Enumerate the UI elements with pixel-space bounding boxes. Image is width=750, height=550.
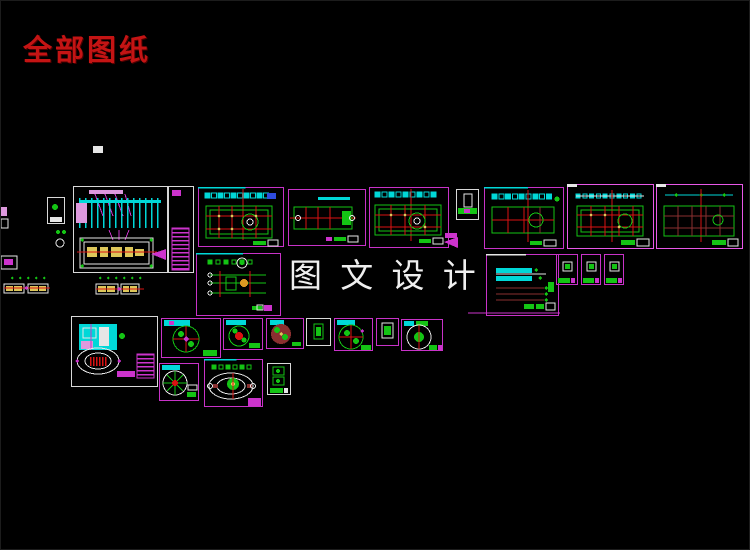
drawing-bars-c-shape-1 <box>496 276 532 281</box>
loose-shape-22 <box>107 277 110 280</box>
loose-shape-7 <box>4 259 13 265</box>
drawing-bars-c-shape-14 <box>546 303 555 310</box>
drawing-wheel-a-shape-7 <box>183 336 189 342</box>
loose-shape-36 <box>444 237 458 248</box>
drawing-wheel-a-shape-8 <box>203 350 217 356</box>
drawing-ellipse-part-shape-6 <box>213 384 218 388</box>
drawing-ellipse-part[interactable] <box>204 360 263 407</box>
drawing-bars-c-shape-4 <box>538 276 542 280</box>
drawing-wheel-b[interactable] <box>224 319 263 350</box>
drawing-plan-b-shape-11 <box>390 214 393 217</box>
drawing-thumb-c[interactable] <box>605 255 624 285</box>
drawing-wheel-b-shape-0 <box>226 320 246 325</box>
drawing-bars-a-shape-9 <box>334 237 346 241</box>
drawing-part-small-top-shape-2 <box>464 209 470 213</box>
drawing-detail-left-shape-2 <box>99 327 109 346</box>
drawing-plan-a[interactable] <box>198 188 284 247</box>
drawing-wheel-f-shape-7 <box>187 392 196 397</box>
drawing-plan-e-shape-4 <box>722 193 726 197</box>
drawing-detail-left-shape-8 <box>90 357 107 366</box>
drawing-wheel-e-shape-0 <box>404 321 414 326</box>
drawing-plan-d-shape-16 <box>621 240 635 245</box>
loose-shape-1 <box>56 230 60 234</box>
drawing-plan-d[interactable] <box>567 184 654 249</box>
drawing-bars-c-shape-3 <box>534 268 538 272</box>
drawing-wheel-a-shape-6 <box>188 341 194 347</box>
drawing-plan-b-shape-15 <box>433 238 443 244</box>
drawing-plan-d-shape-12 <box>618 214 632 228</box>
drawing-plan-a-shape-1 <box>267 193 276 199</box>
drawing-wheel-d-shape-4 <box>344 330 350 336</box>
drawing-wheel-a-shape-1 <box>169 321 174 325</box>
loose-shape-4 <box>1 207 7 216</box>
drawing-part-c-shape-4 <box>270 388 283 393</box>
drawing-plan-d-shape-17 <box>637 239 649 246</box>
drawing-assembly-main-shape-21 <box>80 264 84 268</box>
drawing-wheel-c-shape-5 <box>292 342 301 346</box>
drawing-detail-left-shape-12 <box>137 354 154 376</box>
drawing-bars-a-shape-11 <box>326 237 332 241</box>
drawing-plan-c-shape-10 <box>544 240 556 246</box>
loose-shape-26 <box>139 277 142 280</box>
drawing-thumb-b-shape-1 <box>589 264 594 269</box>
drawing-bars-b-shape-2 <box>240 261 244 265</box>
drawing-part-b-shape-1 <box>384 326 391 335</box>
drawing-part-c-shape-1 <box>276 369 280 373</box>
drawing-plan-b-shape-14 <box>419 239 431 243</box>
drawing-bars-c-shape-8 <box>544 286 548 290</box>
drawing-assembly-main[interactable] <box>74 187 168 273</box>
drawing-wheel-a-shape-0 <box>164 320 190 326</box>
drawing-wheel-f-shape-0 <box>162 365 180 370</box>
loose-shape-5 <box>1 219 8 228</box>
watermark-text: 图 文 设 计 <box>289 249 481 297</box>
drawing-plan-c-shape-8 <box>555 197 560 202</box>
drawing-plan-d-shape-0 <box>567 184 577 187</box>
drawing-wheel-f-shape-8 <box>188 385 197 390</box>
drawing-bars-c-shape-10 <box>544 298 548 302</box>
loose-shape-24 <box>123 277 126 280</box>
drawing-wheel-c-shape-3 <box>282 334 288 340</box>
loose-shape-21 <box>99 277 102 280</box>
drawing-detail-left-shape-6 <box>77 348 119 374</box>
drawing-thumb-b-shape-2 <box>583 278 594 283</box>
loose-shape-0 <box>93 146 103 153</box>
drawing-thumb-a-shape-2 <box>558 278 570 283</box>
drawing-bars-a-shape-0 <box>318 197 350 200</box>
drawing-plan-a-shape-18 <box>268 240 278 246</box>
drawing-wheel-e[interactable] <box>402 320 443 351</box>
drawing-ellipse-part-shape-8 <box>208 384 213 389</box>
loose-shape-12 <box>43 277 46 280</box>
drawing-ref-box-shape-0 <box>52 204 58 210</box>
drawing-plan-a-shape-3 <box>206 206 272 238</box>
drawing-part-small-top-shape-0 <box>464 194 472 207</box>
drawing-thumb-c-shape-2 <box>606 278 617 283</box>
loose-shape-3 <box>56 239 64 247</box>
drawing-wheel-d-shape-7 <box>361 345 371 350</box>
drawing-part-a-shape-1 <box>316 327 321 336</box>
page-title: 全部图纸 <box>23 27 151 69</box>
drawing-bars-c-shape-0 <box>496 268 532 273</box>
drawing-bars-a-shape-10 <box>348 236 358 242</box>
drawing-bars-a[interactable] <box>289 190 366 246</box>
drawing-detail-left-shape-9 <box>75 359 79 363</box>
drawing-wheel-b-shape-3 <box>233 329 238 334</box>
drawing-wheel-b-shape-5 <box>249 343 260 348</box>
drawing-wheel-e-shape-6 <box>438 345 442 350</box>
drawing-plan-e-shape-0 <box>656 184 666 187</box>
drawing-plan-a-shape-17 <box>253 241 266 245</box>
drawing-plan-c-shape-9 <box>530 241 542 245</box>
drawing-plan-e-shape-6 <box>664 206 734 236</box>
drawing-thumb-b[interactable] <box>582 255 601 285</box>
drawing-bars-c-shape-9 <box>544 292 548 296</box>
drawing-wheel-c-shape-2 <box>274 327 280 333</box>
drawing-assembly-main-shape-6 <box>79 200 161 203</box>
drawing-detail-left[interactable] <box>72 317 158 387</box>
drawing-bars-c-shape-13 <box>536 304 544 309</box>
drawing-detail-left-shape-10 <box>117 359 121 363</box>
drawing-plan-d-shape-14 <box>604 214 607 217</box>
drawing-bars-b[interactable] <box>196 254 281 316</box>
drawing-plan-d-shape-15 <box>618 226 621 229</box>
drawing-ref-box-shape-1 <box>50 217 62 222</box>
drawing-part-c-shape-3 <box>276 379 280 383</box>
drawing-plan-d-shape-5 <box>581 210 639 232</box>
drawing-plan-a-shape-15 <box>231 228 234 231</box>
drawing-plan-e-shape-14 <box>712 240 726 245</box>
drawing-thumb-c-shape-1 <box>612 264 617 269</box>
drawing-plan-a-shape-0 <box>205 193 269 198</box>
drawing-thumb-c-shape-3 <box>618 278 622 283</box>
drawing-bars-c[interactable] <box>486 255 559 316</box>
drawing-plan-a-shape-11 <box>247 219 253 225</box>
drawing-wheel-a[interactable] <box>162 319 221 358</box>
drawing-wheel-f-shape-6 <box>172 380 178 386</box>
drawing-part-c-shape-5 <box>284 388 288 393</box>
drawing-ellipse-part-shape-0 <box>212 365 251 369</box>
drawing-thumb-a[interactable] <box>557 255 578 285</box>
drawing-bars-c-shape-11 <box>548 282 554 292</box>
loose-shape-8 <box>11 277 14 280</box>
drawing-assembly-main-shape-22 <box>149 264 153 268</box>
drawing-part-a[interactable] <box>307 319 331 346</box>
drawing-thumb-a-shape-3 <box>571 278 575 283</box>
drawing-ellipse-part-shape-10 <box>248 398 261 406</box>
loose-shape-2 <box>62 230 66 234</box>
drawing-plan-c-shape-0 <box>492 194 551 199</box>
drawing-assembly-main-shape-7 <box>76 203 87 223</box>
loose-shape-10 <box>27 277 30 280</box>
drawing-assembly-main-shape-0 <box>89 190 123 194</box>
loose-shape-23 <box>115 277 118 280</box>
drawing-plan-a-shape-16 <box>255 215 258 218</box>
drawing-wheel-f[interactable] <box>160 364 199 401</box>
drawing-ref-box[interactable] <box>48 198 65 224</box>
drawing-part-b[interactable] <box>377 319 399 346</box>
drawing-assembly-main-shape-20 <box>149 238 153 242</box>
drawing-wheel-c[interactable] <box>267 319 304 349</box>
drawing-thumb-a-shape-1 <box>565 264 570 269</box>
drawing-wheel-a-shape-5 <box>178 331 184 337</box>
drawing-thumb-b-shape-3 <box>595 278 599 283</box>
drawing-plan-a-shape-13 <box>231 215 234 218</box>
drawing-plan-b-shape-12 <box>404 214 407 217</box>
drawing-plan-b-shape-13 <box>424 226 427 229</box>
drawing-detail-left-shape-5 <box>119 333 125 339</box>
drawing-wheel-d-shape-0 <box>337 320 355 325</box>
drawing-plan-b-shape-10 <box>414 218 420 224</box>
drawing-plan-c[interactable] <box>484 188 564 249</box>
drawing-assembly-main-shape-19 <box>80 238 84 242</box>
loose-shape-25 <box>131 277 134 280</box>
drawing-hatch-column-shape-2 <box>172 228 189 270</box>
drawing-wheel-d-shape-5 <box>353 338 359 344</box>
drawing-plan-a-shape-14 <box>218 228 221 231</box>
drawing-detail-left-shape-13 <box>117 371 135 377</box>
loose-shape-9 <box>19 277 22 280</box>
drawing-plan-b-shape-0 <box>375 192 436 197</box>
drawing-plan-e-shape-2 <box>674 193 678 197</box>
drawing-bars-b-shape-9 <box>240 279 248 287</box>
drawing-detail-left-shape-7 <box>85 353 111 369</box>
drawing-plan-b-shape-3 <box>379 209 437 231</box>
drawing-bars-b-shape-0 <box>208 260 252 264</box>
drawing-plan-e-shape-15 <box>728 239 738 246</box>
drawing-bars-b-shape-14 <box>264 305 272 311</box>
drawing-part-small-top[interactable] <box>457 190 479 220</box>
drawing-wheel-e-shape-5 <box>429 345 437 350</box>
drawing-assembly-main-shape-1 <box>95 194 103 216</box>
drawing-plan-b[interactable] <box>370 188 449 248</box>
drawing-bars-c-border <box>487 255 559 316</box>
loose-shape-35 <box>445 233 457 238</box>
drawing-hatch-column-shape-0 <box>172 190 181 196</box>
drawing-bars-c-shape-12 <box>524 304 534 309</box>
loose-shape-20 <box>24 286 28 290</box>
drawing-plan-d-shape-13 <box>590 214 593 217</box>
drawing-plan-a-shape-12 <box>218 215 221 218</box>
drawing-wheel-d[interactable] <box>335 319 373 351</box>
cad-viewer-window: 全部图纸 图 文 设 计 <box>0 0 750 550</box>
drawing-wheel-b-shape-2 <box>235 332 243 340</box>
loose-shape-11 <box>35 277 38 280</box>
drawing-wheel-b-shape-4 <box>242 338 247 343</box>
drawing-part-c[interactable] <box>268 364 291 395</box>
drawing-hatch-column[interactable] <box>169 187 194 273</box>
drawing-plan-e[interactable] <box>656 184 743 249</box>
